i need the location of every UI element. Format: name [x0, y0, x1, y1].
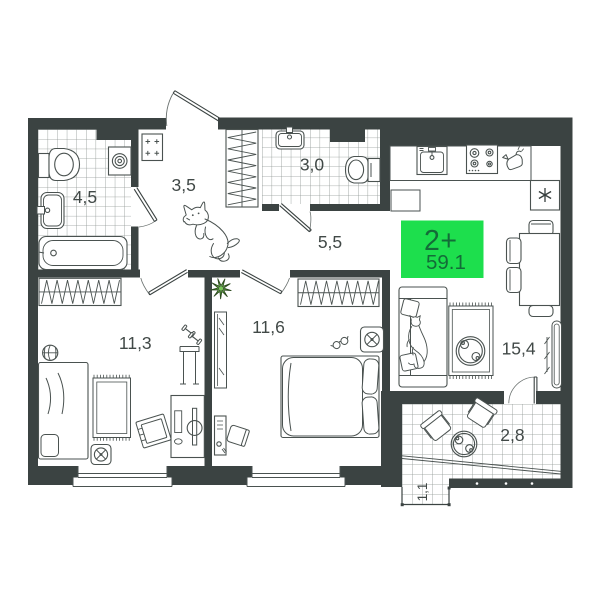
svg-text:4,5: 4,5 [73, 187, 97, 207]
svg-text:3,0: 3,0 [300, 155, 325, 175]
svg-text:15,4: 15,4 [502, 339, 536, 359]
svg-text:11,6: 11,6 [252, 317, 285, 337]
svg-text:11,3: 11,3 [119, 333, 152, 353]
svg-text:5,5: 5,5 [318, 232, 342, 252]
svg-text:1,1: 1,1 [415, 483, 430, 502]
svg-text:3,5: 3,5 [172, 175, 196, 195]
svg-text:2,8: 2,8 [500, 425, 524, 445]
svg-text:59.1: 59.1 [426, 251, 466, 274]
